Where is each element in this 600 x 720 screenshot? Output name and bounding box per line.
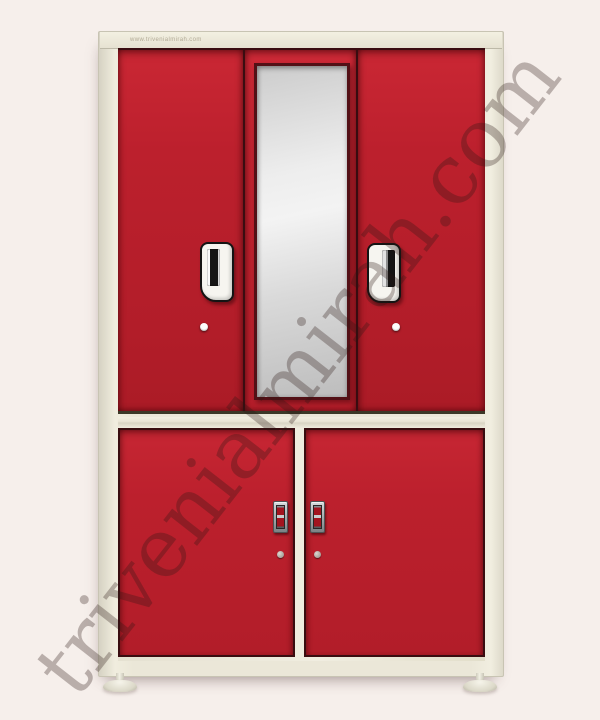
almirah-cabinet: www.trivenialmirah.com xyxy=(98,31,504,677)
keyhole-lower-right xyxy=(314,551,321,558)
handle-grip-slot xyxy=(382,250,395,287)
website-url-label: www.trivenialmirah.com xyxy=(130,37,202,44)
lock-latch xyxy=(313,505,322,529)
keyhole-upper-right xyxy=(392,323,400,331)
slide-lock-left xyxy=(273,501,288,533)
lower-door-left xyxy=(118,428,295,657)
mirror xyxy=(254,63,350,400)
leveling-foot-left xyxy=(103,673,137,695)
upper-door-left xyxy=(118,50,243,411)
lower-section xyxy=(118,428,485,661)
middle-divider-rail xyxy=(118,417,485,428)
door-handle-right xyxy=(367,243,401,303)
lock-latch xyxy=(276,505,285,529)
lower-door-right xyxy=(304,428,485,657)
foot-base xyxy=(103,680,137,692)
product-photo-canvas: www.trivenialmirah.com xyxy=(0,0,600,720)
upper-door-right xyxy=(358,50,485,411)
door-handle-left xyxy=(200,242,234,302)
foot-base xyxy=(463,680,497,692)
handle-grip-slot xyxy=(207,249,220,286)
slide-lock-right xyxy=(310,501,325,533)
keyhole-lower-left xyxy=(277,551,284,558)
leveling-foot-right xyxy=(463,673,497,695)
keyhole-upper-left xyxy=(200,323,208,331)
cabinet-top-rail: www.trivenialmirah.com xyxy=(100,32,502,49)
